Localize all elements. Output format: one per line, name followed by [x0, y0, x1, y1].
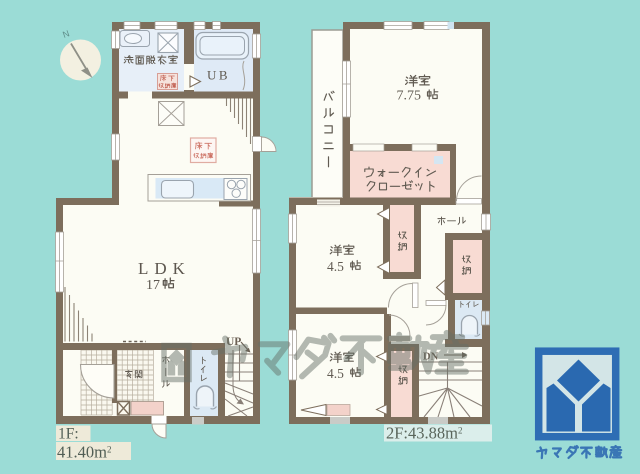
svg-text:LDK: LDK	[138, 259, 191, 278]
svg-text:41.40m2: 41.40m2	[57, 443, 111, 462]
svg-text:1F:: 1F:	[58, 426, 79, 443]
svg-text:7.75: 7.75	[397, 89, 422, 104]
svg-text:UB: UB	[207, 68, 230, 83]
svg-text:4.5: 4.5	[327, 259, 344, 274]
svg-text:2F:43.88m2: 2F:43.88m2	[386, 424, 462, 443]
svg-text:17: 17	[146, 278, 160, 293]
svg-text:4.5: 4.5	[327, 366, 344, 381]
